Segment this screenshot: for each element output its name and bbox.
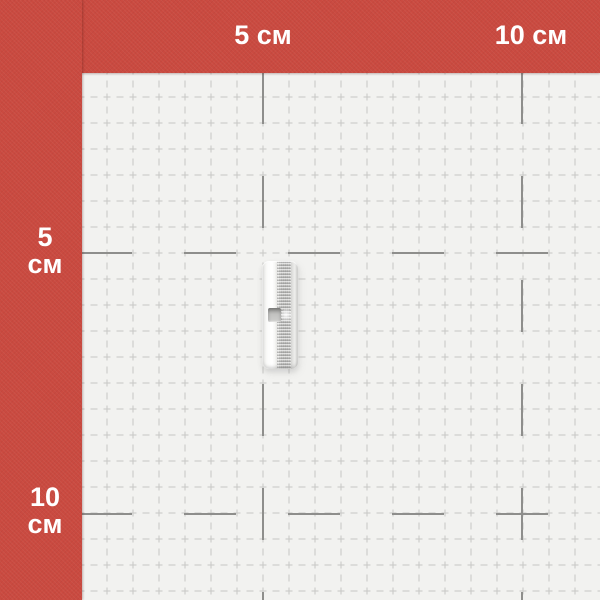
ruler-label-left-5cm: 5 см [28,224,63,278]
ruler-frame-left: 5 см 10 см [0,0,82,600]
tick-value: 10 [28,484,63,511]
tick-unit: см [28,251,63,278]
sleeve-side-hole-highlight [281,309,292,322]
ruler-label-top-5cm: 5 см [234,22,292,49]
ruler-label-top-10cm: 10 см [495,22,568,49]
measurement-grid-paper [0,0,600,600]
tick-unit: см [28,511,63,538]
ruler-frame-top: 5 см 10 см [0,0,600,73]
product-photo-canvas: 5 см 10 см 5 см 10 см [0,0,600,600]
sleeve-inspection-hole [268,308,281,322]
ruler-label-left-10cm: 10 см [28,484,63,538]
tick-value: 5 [28,224,63,251]
product-butt-connector-sleeve [262,261,298,369]
